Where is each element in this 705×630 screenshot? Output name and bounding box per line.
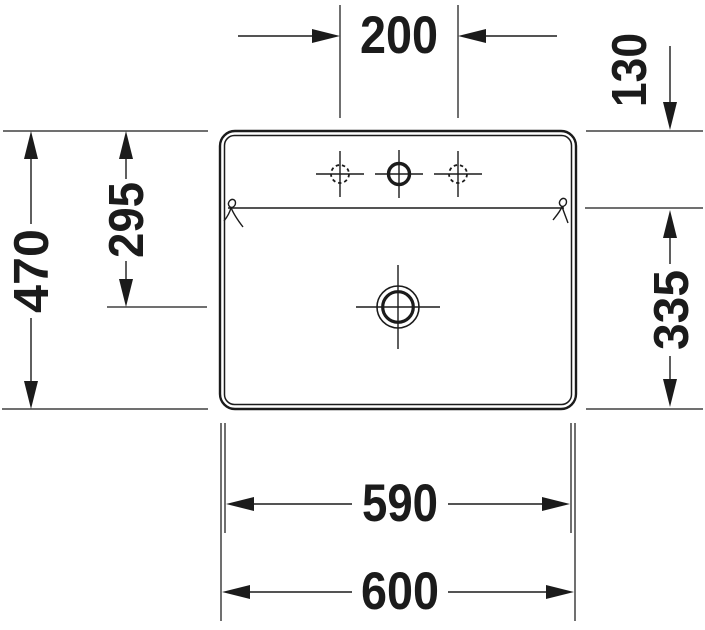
arrowhead-down-icon	[663, 379, 677, 407]
arrowhead-down-icon	[24, 381, 38, 409]
faucet-hole-center	[375, 150, 423, 198]
arrowhead-right-icon	[312, 29, 340, 43]
dimension-back-shelf: 130	[586, 33, 703, 131]
arrowhead-left-icon	[226, 497, 254, 511]
faucet-hole-right	[434, 151, 482, 197]
drawing-canvas: 200 130 335 470 295	[0, 0, 705, 630]
arrowhead-down-icon	[119, 279, 133, 307]
dim-label-130: 130	[603, 33, 657, 107]
drain-hole	[356, 265, 440, 349]
dimension-drain-position: 295	[100, 131, 207, 307]
dimension-overall-depth: 470	[2, 131, 208, 409]
washbasin-technical-drawing: 200 130 335 470 295	[0, 0, 705, 630]
dim-label-335: 335	[645, 270, 699, 350]
break-mark-left	[224, 199, 243, 227]
dimension-faucet-spacing: 200	[238, 5, 557, 118]
arrowhead-up-icon	[663, 210, 677, 238]
arrowhead-down-icon	[663, 102, 677, 130]
break-mark-right	[553, 198, 568, 223]
dimension-bowl-front: 335	[585, 208, 703, 409]
dimension-base-width: 590	[225, 423, 571, 533]
arrowhead-right-icon	[542, 497, 570, 511]
dim-label-200: 200	[360, 6, 438, 65]
arrowhead-up-icon	[119, 131, 133, 159]
dim-label-590: 590	[362, 474, 438, 533]
arrowhead-left-icon	[222, 585, 250, 599]
faucet-hole-left	[316, 151, 364, 197]
faucet-holes	[316, 150, 482, 198]
arrowhead-left-icon	[458, 29, 486, 43]
dim-label-600: 600	[361, 562, 439, 621]
arrowhead-right-icon	[546, 585, 574, 599]
arrowhead-up-icon	[24, 131, 38, 159]
dim-label-470: 470	[5, 229, 59, 313]
dim-label-295: 295	[100, 182, 154, 258]
